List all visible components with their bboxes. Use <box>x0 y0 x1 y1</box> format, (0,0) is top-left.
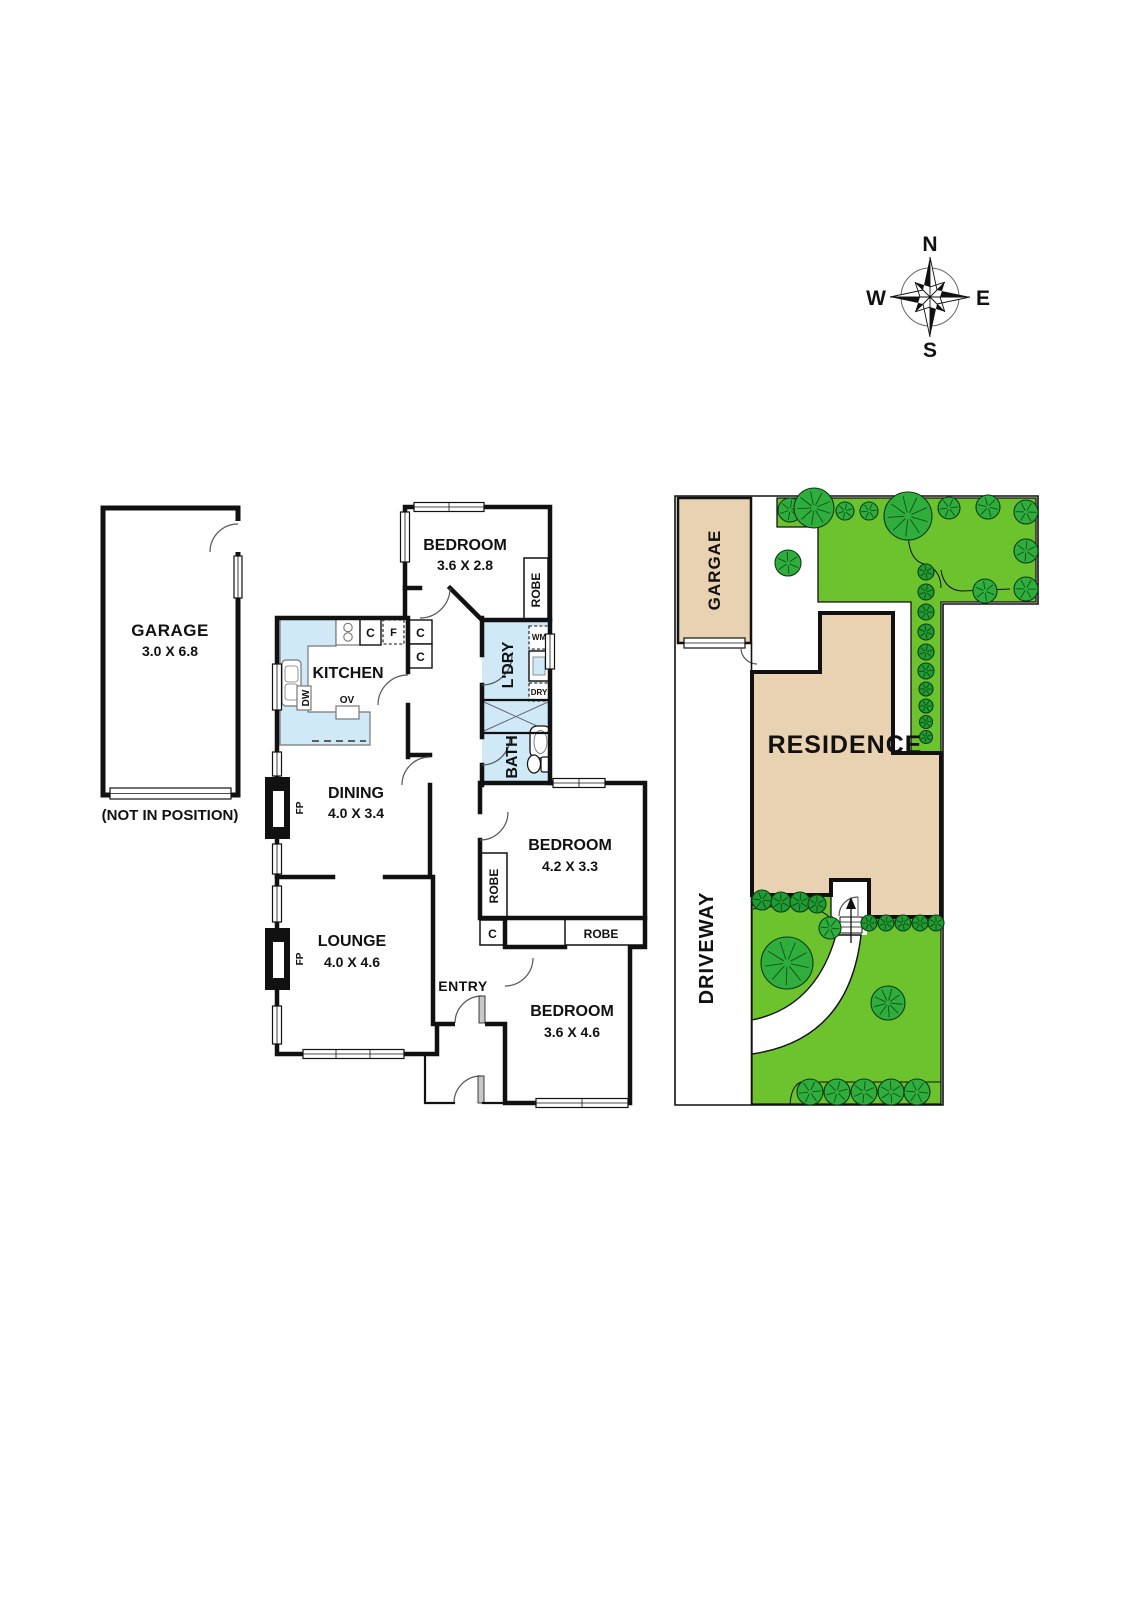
hall-cupboards: C C <box>409 620 432 668</box>
site-plan: RESIDENCE GARGAE DRIVEWAY <box>675 488 1038 1105</box>
dishwasher-label: DW <box>301 689 312 706</box>
front-door-leaf <box>479 996 485 1023</box>
shrub-icon <box>919 682 933 696</box>
tree-icon <box>794 488 834 528</box>
shrub-icon <box>861 915 877 931</box>
shrub-icon <box>920 731 933 744</box>
shrub-icon <box>918 604 934 620</box>
cupboard-label: C <box>366 626 375 640</box>
window <box>536 1099 628 1108</box>
washer-label: WM <box>532 633 547 642</box>
window <box>273 752 282 776</box>
window <box>273 1006 282 1044</box>
dining-label: DINING <box>328 785 384 802</box>
shrub-icon <box>919 699 933 713</box>
cupboard-label: C <box>416 650 425 664</box>
robe-label: ROBE <box>529 573 543 608</box>
tree-icon <box>871 986 905 1020</box>
dryer-label: DRY <box>531 688 548 697</box>
laundry-label: L'DRY <box>500 641 517 688</box>
compass-north-label: N <box>922 233 937 256</box>
garage-label: GARAGE <box>131 621 209 640</box>
window <box>273 844 282 874</box>
lounge-dims: 4.0 X 4.6 <box>324 954 380 970</box>
floorplan-drawing: N E S W GARAGE 3.0 X 6.8 (NOT IN POSITIO… <box>0 0 1131 1600</box>
shrub-icon <box>771 892 791 912</box>
shrub-icon <box>918 584 934 600</box>
bedroom1-dims: 3.6 X 2.8 <box>437 557 493 573</box>
tree-icon <box>836 502 854 520</box>
house-floorplan: C F DW OV C C WM DRY <box>265 503 645 1108</box>
tree-icon <box>878 1079 904 1105</box>
shrub-icon <box>895 915 911 931</box>
compass-star-light <box>890 257 970 337</box>
garage-note: (NOT IN POSITION) <box>102 807 239 824</box>
robe-label: ROBE <box>584 927 619 941</box>
shrub-icon <box>918 564 934 580</box>
shrub-icon <box>790 892 810 912</box>
entry-label: ENTRY <box>438 978 488 994</box>
fireplace-label: FP <box>295 801 306 814</box>
tree-icon <box>884 492 932 540</box>
cupboard-label: C <box>488 927 497 941</box>
garage-floorplan: GARAGE 3.0 X 6.8 (NOT IN POSITION) <box>102 508 242 824</box>
tree-icon <box>904 1079 930 1105</box>
compass-west-label: W <box>866 287 886 310</box>
shrub-icon <box>878 915 894 931</box>
tree-icon <box>797 1079 823 1105</box>
floorplan-page: N E S W GARAGE 3.0 X 6.8 (NOT IN POSITIO… <box>0 0 1131 1600</box>
lounge-label: LOUNGE <box>318 933 387 950</box>
shrub-icon <box>912 915 928 931</box>
window <box>273 664 282 710</box>
tree-icon <box>938 497 960 519</box>
window <box>401 512 410 562</box>
driveway-label: DRIVEWAY <box>696 892 718 1005</box>
dining-dims: 4.0 X 3.4 <box>328 805 384 821</box>
tree-icon <box>1014 500 1038 524</box>
shrub-icon <box>918 624 934 640</box>
compass-rose-icon: N E S W <box>866 233 990 362</box>
bedroom3-dims: 3.6 X 4.6 <box>544 1024 600 1040</box>
tree-icon <box>973 579 997 603</box>
cupboard-label: C <box>416 626 425 640</box>
oven-label: OV <box>340 695 355 706</box>
fireplace-label: FP <box>295 952 306 965</box>
shrub-icon <box>920 716 933 729</box>
kitchen-label: KITCHEN <box>312 665 383 682</box>
shrub-icon <box>808 895 826 913</box>
shrub-icon <box>928 915 944 931</box>
garage-window <box>234 556 242 598</box>
tree-icon <box>824 1079 850 1105</box>
garage-door-opening <box>233 521 242 552</box>
tree-icon <box>761 937 813 989</box>
tree-icon <box>851 1079 877 1105</box>
bedroom2-dims: 4.2 X 3.3 <box>542 858 598 874</box>
tree-icon <box>1014 577 1038 601</box>
tree-icon <box>1014 539 1038 563</box>
residence-label: RESIDENCE <box>768 731 923 759</box>
bedroom1-label: BEDROOM <box>423 537 507 554</box>
shrub-icon <box>752 890 772 910</box>
toilet-icon <box>528 755 541 773</box>
tree-icon <box>976 495 1000 519</box>
garage-dims: 3.0 X 6.8 <box>142 643 198 659</box>
tree-icon <box>819 917 841 939</box>
bedroom2-label: BEDROOM <box>528 837 612 854</box>
porch-door-leaf <box>478 1076 484 1103</box>
bedroom3-label: BEDROOM <box>530 1003 614 1020</box>
trough-bowl <box>533 657 545 675</box>
site-garage-label: GARGAE <box>705 530 724 611</box>
window <box>546 634 555 669</box>
tree-icon <box>775 550 801 576</box>
garage-roller-door <box>110 788 231 799</box>
shrub-icon <box>918 663 934 679</box>
window <box>553 779 605 788</box>
shrub-icon <box>918 644 934 660</box>
tree-icon <box>860 502 878 520</box>
fridge-label: F <box>390 627 397 639</box>
porch-door-arc <box>454 1076 481 1103</box>
window <box>303 1050 404 1059</box>
window <box>273 886 282 922</box>
porch-walls <box>425 1054 505 1103</box>
robe-label: ROBE <box>487 869 501 904</box>
bath-label: BATH <box>504 735 521 778</box>
compass-east-label: E <box>976 287 990 310</box>
window <box>414 503 484 512</box>
oven-box <box>336 706 359 719</box>
compass-south-label: S <box>923 339 937 362</box>
